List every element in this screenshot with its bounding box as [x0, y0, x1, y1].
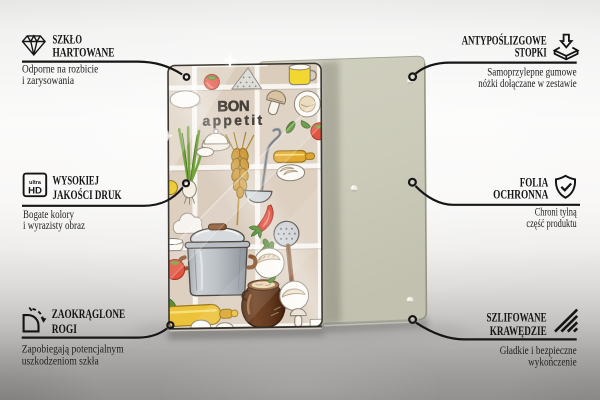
svg-text:i wyrazisty obraz: i wyrazisty obraz	[23, 220, 85, 232]
svg-text:KRAWĘDZIE: KRAWĘDZIE	[490, 324, 547, 338]
svg-text:Chroni tylną: Chroni tylną	[535, 207, 578, 219]
svg-text:JAKOŚCI DRUK: JAKOŚCI DRUK	[53, 188, 122, 202]
svg-text:nóżki dołączane w zestawie: nóżki dołączane w zestawie	[478, 78, 577, 90]
svg-text:Zapobiegają potencjalnym: Zapobiegają potencjalnym	[22, 344, 124, 356]
svg-text:HD: HD	[28, 186, 42, 197]
svg-text:HARTOWANE: HARTOWANE	[53, 45, 115, 59]
svg-text:SZLIFOWANE: SZLIFOWANE	[487, 310, 547, 324]
svg-text:WYSOKIEJ: WYSOKIEJ	[53, 173, 100, 187]
svg-text:Gładkie i bezpieczne: Gładkie i bezpieczne	[500, 345, 577, 357]
svg-text:Samoprzylepne gumowe: Samoprzylepne gumowe	[487, 66, 577, 78]
svg-text:STOPKI: STOPKI	[515, 45, 547, 59]
svg-text:uszkodzeniom szkła: uszkodzeniom szkła	[22, 355, 99, 367]
svg-text:Odporne na rozbicie: Odporne na rozbicie	[22, 63, 98, 75]
svg-text:ZAOKRĄGLONE: ZAOKRĄGLONE	[52, 307, 126, 321]
svg-text:ROGI: ROGI	[52, 322, 77, 336]
svg-text:wykończenie: wykończenie	[528, 357, 577, 369]
svg-text:i zarysowania: i zarysowania	[22, 75, 74, 87]
svg-text:część produktu: część produktu	[526, 218, 576, 230]
svg-text:OCHRONNA: OCHRONNA	[493, 187, 548, 201]
